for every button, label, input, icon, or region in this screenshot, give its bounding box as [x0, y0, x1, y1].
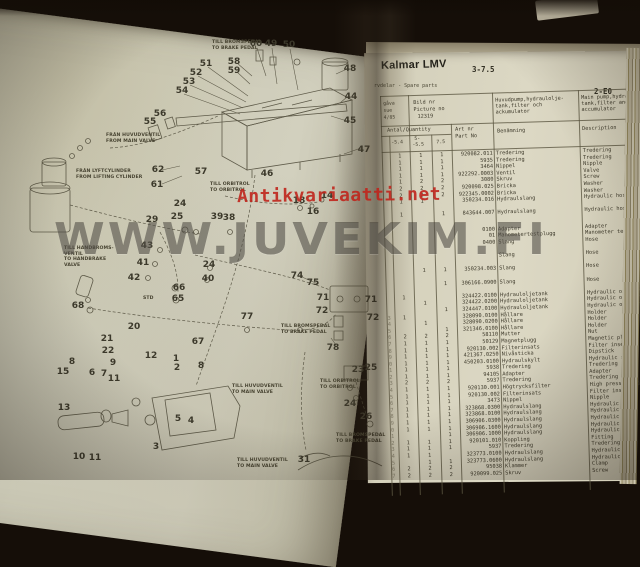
cell-name: Slang [499, 279, 515, 286]
diagram-label: 11 [108, 374, 121, 384]
diagram-label: 24 [174, 199, 187, 209]
cell-q1: 2 [399, 473, 419, 480]
cell-desc: Hose [586, 276, 599, 283]
cell-desc: Hydraulic hose [584, 193, 629, 201]
diagram-callout: TILL BROMSPEDALTO BRAKE PEDAL [336, 433, 385, 444]
hose-lines [70, 116, 368, 450]
diagram-label: 8 [69, 357, 75, 367]
cell-q3 [436, 300, 456, 301]
cell-q1 [394, 282, 414, 283]
callout-line: TO BRAKE PEDAL [281, 330, 330, 336]
diagram-callout: FRÅN LYFTCYLINDERFROM LIFTING CYLINDER [76, 169, 142, 180]
cell-q1 [398, 433, 418, 434]
callout-line: TILL HUVUDVENTIL [232, 384, 283, 390]
cell-q2: 2 [419, 472, 441, 479]
diagram-callout: FRÅN HUVUDVENTILFROM MAIN VALVE [106, 133, 160, 144]
col-header-part-no-en: Part No [455, 133, 477, 140]
diagram-label: 66 [173, 283, 186, 293]
parts-table: gåva sue 4/85 Bild nr Picture no 12319 H… [380, 88, 640, 498]
col-sub-model1: -5.4 [391, 140, 403, 146]
diagram-label: 72 [367, 313, 380, 323]
picture-no-label-sv: Bild nr [413, 99, 435, 106]
diagram-label: 25 [365, 363, 378, 373]
cell-name: Skruv [505, 470, 521, 477]
col-header-description: Description [582, 125, 617, 132]
diagram-callout: TILL BROMSPEDALTO BRAKE PEDAL [281, 324, 330, 335]
diagram-label: 48 [344, 64, 357, 74]
bookseller-stamp: Antikvariaatti.net [237, 184, 441, 207]
diagram-label: 55 [144, 117, 157, 127]
diagram-label: 21 [101, 334, 114, 344]
diagram-label: 54 [176, 86, 189, 96]
col-sub-model2: -5.5 [412, 143, 424, 149]
diagram-label: 42 [128, 273, 141, 283]
diagram-label: 78 [327, 343, 340, 353]
page-subtitle: rvdelar - Spare parts [374, 83, 437, 89]
cell-desc: Hose [586, 263, 599, 270]
callout-line: STD [143, 296, 154, 302]
col-header-name: Benämning [497, 128, 525, 135]
cell-q1 [395, 321, 415, 322]
diagram-label: 72 [316, 306, 329, 316]
callout-line: TO MAIN VALVE [232, 390, 283, 396]
diagram-label: 20 [128, 322, 141, 332]
scene: 6049505859515253544844454756556261574618… [0, 0, 640, 480]
cell-q2 [414, 281, 436, 282]
cell-part: 350234.003 [455, 266, 496, 274]
diagram-label: 3 [153, 442, 159, 452]
cell-name: Slang [499, 265, 515, 272]
callout-line: FROM LIFTING CYLINDER [76, 175, 142, 181]
issue-line2: sue [383, 109, 392, 115]
diagram-label: 62 [152, 165, 165, 175]
diagram-label: 61 [151, 180, 164, 190]
figure-title-en: accumulator [581, 106, 616, 113]
cell-q2 [414, 294, 436, 295]
diagram-label: 68 [72, 301, 85, 311]
diagram-label: 22 [102, 346, 115, 356]
diagram-callout: TILL HUVUDVENTILTO MAIN VALVE [232, 384, 283, 395]
diagram-label: 49 [265, 39, 278, 49]
diagram-label: 71 [365, 295, 378, 305]
diagram-label: 9 [110, 358, 116, 368]
cell-q2: 1 [413, 268, 435, 275]
cell-q1 [393, 268, 413, 269]
diagram-label: 7 [101, 369, 107, 379]
cell-desc: Hose [585, 237, 598, 244]
callout-line: FRÅN HUVUDVENTIL [106, 133, 160, 139]
callout-line: TILL HUVUDVENTIL [237, 458, 288, 464]
diagram-callout: TILL BROMSPEDALTO BRAKE PEDAL [212, 40, 261, 51]
cell-q1 [395, 328, 415, 329]
callout-line: TO ORBITROL [320, 385, 360, 391]
cell-q3: 1 [435, 267, 455, 274]
cell-desc: Hose [586, 250, 599, 257]
diagram-label: 65 [172, 294, 185, 304]
diagram-label: 31 [298, 455, 311, 465]
diagram-label: 67 [192, 337, 205, 347]
col-header-quantity: Antal/Quantity [387, 127, 431, 134]
cell-q2 [418, 433, 440, 434]
bottom-hose [298, 453, 382, 470]
diagram-label: 13 [58, 403, 71, 413]
diagram-label: 6 [89, 368, 95, 378]
diagram-label: 11 [89, 453, 102, 463]
diagram-label: 47 [358, 145, 371, 155]
cell-q1 [399, 460, 419, 461]
figure-title-sv: ackumulator [495, 109, 530, 116]
callout-line: TILL ORBITROL [320, 379, 360, 385]
diagram-label: 12 [145, 351, 158, 361]
callout-line: TILL BROMSPEDAL [336, 433, 385, 439]
diagram-label: 75 [307, 278, 320, 288]
cell-q3 [436, 294, 456, 295]
kalmar-lmv-logo: Kalmar LMV [381, 58, 447, 72]
issue-line3: 4/85 [384, 116, 396, 122]
diagram-label: 5 [175, 414, 181, 424]
cell-q2 [415, 327, 437, 328]
cell-q2 [411, 212, 433, 213]
cell-q1 [394, 301, 414, 302]
cell-q3: 2 [441, 472, 461, 479]
cell-part: 350234.016 [453, 197, 494, 205]
diagram-label: 23 [352, 365, 365, 375]
cell-q3 [441, 452, 461, 453]
diagram-label: 2 [174, 363, 180, 373]
diagram-label: 46 [261, 169, 274, 179]
cell-part: 920099.025 [461, 470, 502, 478]
diagram-label: 4 [188, 416, 194, 426]
callout-line: FROM MAIN VALVE [106, 139, 160, 145]
diagram-label: 57 [195, 167, 208, 177]
picture-no-label-en: Picture no [413, 106, 444, 113]
cell-q1 [394, 308, 414, 309]
watermark-text: WWW.JUVEKIM.FI [54, 214, 548, 265]
cell-pos: 7 [392, 473, 398, 480]
cell-part: 306166.0900 [456, 279, 497, 287]
table-row: 1306166.0900SlangHose [386, 275, 640, 289]
cell-q3 [437, 320, 457, 321]
diagram-label: 15 [57, 367, 70, 377]
cell-q3 [436, 313, 456, 314]
callout-line: TO BRAKE PEDAL [212, 46, 261, 52]
photo-of-parts-manual: { "photo": { "watermark": "WWW.JUVEKIM.F… [0, 0, 640, 480]
picture-no-value: 12319 [418, 113, 434, 119]
col-sub-model3: 7.5 [436, 140, 445, 146]
diagram-label: 71 [317, 293, 330, 303]
callout-line: TILL BROMSPEDAL [281, 324, 330, 330]
cell-q2 [414, 307, 436, 308]
diagram-label: 50 [283, 40, 296, 50]
cell-desc: Screw [592, 467, 608, 474]
callout-line: TO MAIN VALVE [237, 464, 288, 470]
col-header-part-no-sv: Art nr [455, 126, 474, 133]
diagram-callout: TILL ORBITROLTO ORBITROL [320, 379, 360, 390]
diagram-label: 44 [345, 92, 358, 102]
diagram-callout: TILL HUVUDVENTILTO MAIN VALVE [237, 458, 288, 469]
diagram-label: 26 [360, 412, 373, 422]
diagram-callout: STD [143, 296, 154, 302]
diagram-label: 24 [344, 399, 357, 409]
callout-line: TO BRAKE PEDAL [336, 439, 385, 445]
diagram-label: 74 [291, 271, 304, 281]
diagram-label: 8 [198, 361, 204, 371]
cell-q3: 1 [436, 280, 456, 287]
model-range: 3-7.5 [472, 65, 495, 74]
diagram-label: 45 [344, 116, 357, 126]
callout-line: TILL BROMSPEDAL [212, 40, 261, 46]
cell-name: Hydraulslang [497, 196, 535, 204]
issue-line1: gåva [383, 102, 395, 108]
cell-desc: Hydraulic hose [584, 206, 629, 214]
diagram-label: 59 [228, 66, 241, 76]
diagram-label: 77 [241, 312, 254, 322]
diagram-label: 10 [73, 452, 86, 462]
cell-q2 [415, 314, 437, 315]
diagram-label: 40 [202, 274, 215, 284]
